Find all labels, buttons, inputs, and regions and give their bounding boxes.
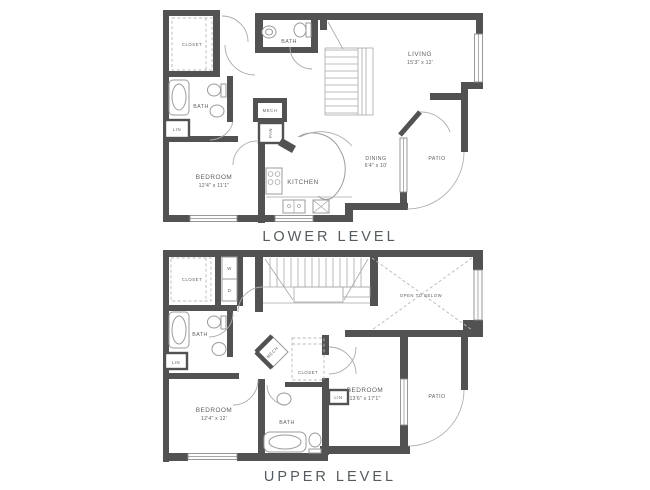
lower-walls [163, 10, 483, 223]
upper-lin2-label: LIN [334, 395, 342, 400]
lower-living-dims: 15'3" x 12' [407, 60, 433, 66]
upper-bath1-label: BATH [192, 332, 207, 338]
upper-closet2-label: CLOSET [298, 370, 318, 375]
lower-bath2-label: BATH [193, 104, 208, 110]
lower-dining-dims: 6'4" x 10' [365, 163, 388, 169]
upper-bath2-label: BATH [279, 420, 294, 426]
lower-dining-label: DINING [365, 156, 386, 162]
lower-kitchen-label: KITCHEN [287, 179, 319, 186]
upper-closet1-label: CLOSET [182, 277, 202, 282]
upper-window-bedroom1 [188, 454, 237, 460]
upper-bedroom2-dims: 13'6" x 17'1" [349, 396, 380, 402]
lower-dining-curved-wall [298, 133, 345, 199]
upper-bedroom1-dims: 12'4" x 12' [201, 416, 227, 422]
upper-bedroom1-label: BEDROOM [196, 407, 233, 414]
floorplan-svg: CLOSET BATH LIVING 15'3" x 12' BATH LIN … [0, 0, 650, 490]
upper-window-patio [401, 379, 408, 425]
upper-level-title: UPPER LEVEL [264, 469, 396, 485]
lower-bedroom-label: BEDROOM [196, 174, 233, 181]
lower-stairs [325, 22, 373, 115]
lower-dining-arc [300, 132, 352, 146]
upper-bedroom2-label: BEDROOM [347, 387, 384, 394]
upper-patio-label: PATIO [428, 394, 445, 400]
lower-bedroom-dims: 12'4" x 11'1" [199, 183, 230, 189]
lower-window-bedroom [190, 216, 237, 222]
lower-living-label: LIVING [408, 51, 432, 58]
floorplan-canvas: CLOSET BATH LIVING 15'3" x 12' BATH LIN … [0, 0, 650, 490]
upper-dryer-label: D [228, 288, 232, 293]
lower-patio-label: PATIO [428, 156, 445, 162]
upper-walls [163, 250, 483, 462]
upper-stairs [263, 258, 370, 303]
upper-open-to-below-label: OPEN TO BELOW [400, 293, 443, 298]
lower-mech-label: MECH [263, 108, 278, 113]
lower-bath1-label: BATH [281, 39, 296, 45]
lower-window-kitchen [275, 216, 313, 222]
lower-window-patio [400, 138, 407, 192]
lower-bath1-fixtures [262, 23, 311, 38]
lower-window-living [475, 34, 483, 82]
lower-pan-label: PAN [268, 128, 273, 138]
lower-lin-label: LIN [173, 127, 181, 132]
upper-window-open-to-below [474, 270, 482, 320]
upper-level-plan: CLOSET W D BATH LIN MECH CLOSET OPEN TO … [163, 250, 483, 485]
upper-washer-dryer [222, 257, 237, 301]
lower-level-title: LOWER LEVEL [262, 229, 397, 245]
lower-level-plan: CLOSET BATH LIVING 15'3" x 12' BATH LIN … [163, 10, 483, 245]
lower-door-arcs [210, 16, 450, 165]
lower-closet-label: CLOSET [182, 42, 202, 47]
upper-lin1-label: LIN [172, 360, 180, 365]
upper-washer-label: W [227, 266, 232, 271]
